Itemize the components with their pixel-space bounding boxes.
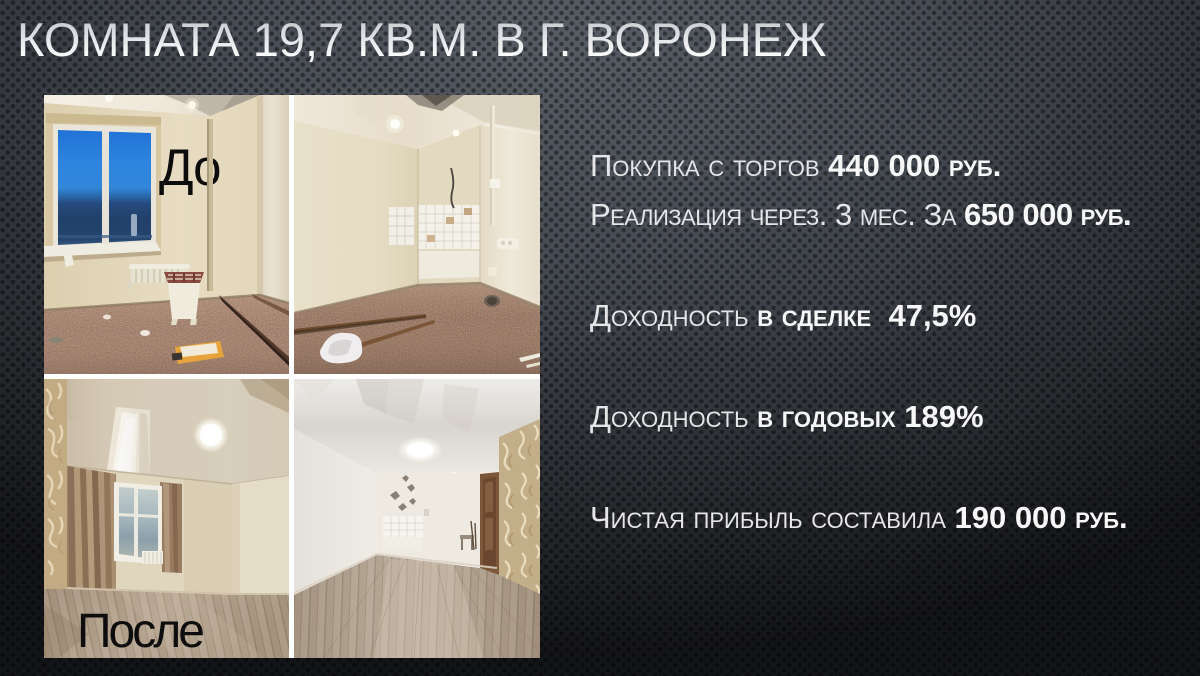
svg-text:После: После — [77, 605, 203, 658]
